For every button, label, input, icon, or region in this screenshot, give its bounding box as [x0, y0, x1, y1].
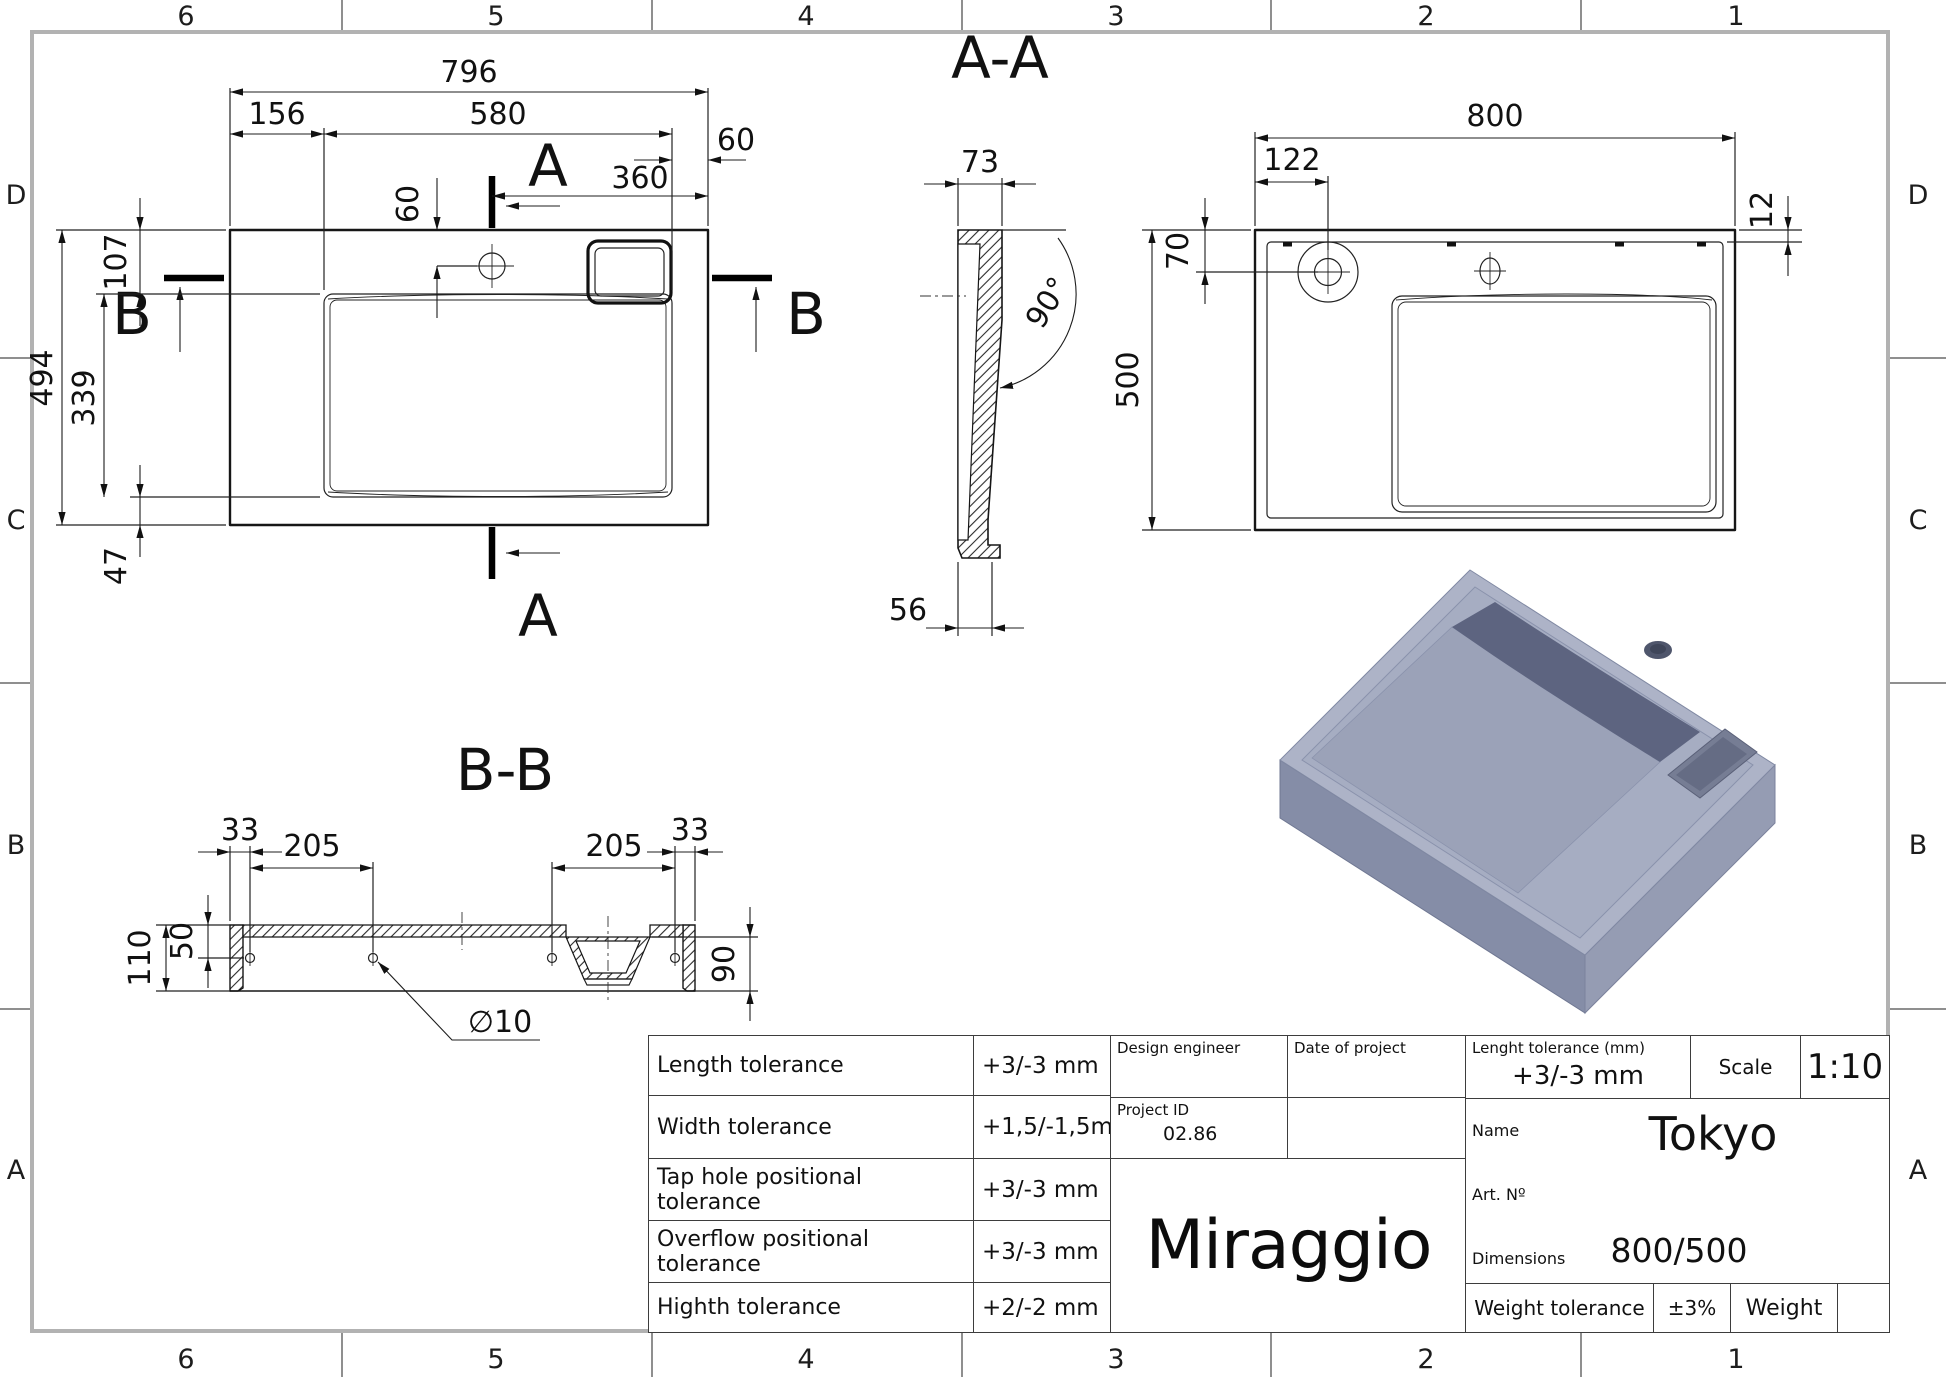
scale-label: Scale	[1719, 1055, 1773, 1079]
brand-logo-cell: Miraggio	[1110, 1158, 1467, 1333]
tolerance-row-label: Highth tolerance	[648, 1282, 974, 1333]
tolerance-label: Overflow positional tolerance	[657, 1228, 969, 1277]
dim-580: 580	[469, 97, 526, 132]
tolerance-row-value: +1,5/-1,5mm	[973, 1095, 1111, 1159]
drawing-sheet: 6 5 4 3 2 1 6 5 4 3 2 1 D C B A D C B A …	[0, 0, 1946, 1377]
name-art-dimensions-cell: Name Art. Nº Dimensions Tokyo 800/500	[1465, 1098, 1890, 1284]
weight-label-cell: Weight	[1730, 1283, 1838, 1333]
bottom-outline	[1255, 230, 1735, 530]
dim-339: 339	[67, 369, 102, 426]
dim-hole-diameter: ∅10	[468, 1005, 532, 1040]
dim-796: 796	[440, 55, 497, 90]
dim-360: 360	[611, 161, 668, 196]
dim-56: 56	[889, 593, 927, 628]
tolerance-label: Highth tolerance	[657, 1296, 841, 1321]
scale-value-cell: 1:10	[1800, 1035, 1890, 1099]
date-of-project-cell: Date of project	[1287, 1035, 1467, 1098]
render-3d	[1280, 570, 1775, 1013]
tolerance-row-label: Tap hole positional tolerance	[648, 1158, 974, 1221]
dim-90deg: 90°	[1019, 271, 1077, 335]
dim-205-right: 205	[585, 829, 642, 864]
brand-logo: Miraggio	[1145, 1206, 1431, 1285]
dimensions-label: Dimensions	[1472, 1249, 1565, 1268]
dim-33-left: 33	[221, 813, 259, 848]
tolerance-row-value: +2/-2 mm	[973, 1282, 1111, 1333]
bb-fixing-holes	[246, 950, 680, 966]
date-of-project-label: Date of project	[1288, 1036, 1466, 1057]
section-aa-title: A-A	[951, 24, 1049, 92]
weight-value-cell	[1837, 1283, 1890, 1333]
section-b-label: B	[786, 280, 826, 348]
project-id-cell: Project ID 02.86	[1110, 1097, 1288, 1159]
weight-tolerance-label-cell: Weight tolerance	[1465, 1283, 1654, 1333]
weight-tolerance-value-cell: ±3%	[1653, 1283, 1731, 1333]
project-id-value: 02.86	[1111, 1123, 1287, 1145]
section-bb-view: B-B 33 205	[123, 736, 758, 1040]
dimensions-value: 800/500	[1569, 1231, 1789, 1270]
length-tolerance-value: +3/-3 mm	[1466, 1061, 1690, 1091]
tolerance-value: +3/-3 mm	[982, 1177, 1099, 1203]
name-label: Name	[1472, 1121, 1519, 1140]
dim-107: 107	[99, 233, 134, 290]
dim-90: 90	[707, 945, 742, 983]
weight-label: Weight	[1746, 1296, 1823, 1321]
plan-basin	[324, 294, 672, 497]
tolerance-value: +2/-2 mm	[982, 1295, 1099, 1321]
design-engineer-label: Design engineer	[1111, 1036, 1287, 1057]
dim-47: 47	[99, 547, 134, 585]
empty-cell	[1287, 1097, 1467, 1159]
dim-494: 494	[25, 349, 60, 406]
design-engineer-cell: Design engineer	[1110, 1035, 1288, 1098]
section-a-label: A	[528, 132, 568, 200]
plan-view: A A B B 796 156 580 60 360	[25, 55, 826, 650]
section-aa-view: A-A 73 90° 56	[889, 24, 1077, 636]
weight-tolerance-value: ±3%	[1668, 1296, 1717, 1320]
dim-50: 50	[165, 922, 200, 960]
length-tolerance-label: Lenght tolerance (mm)	[1466, 1036, 1690, 1057]
tolerance-label: Length tolerance	[657, 1054, 844, 1079]
dim-70: 70	[1161, 232, 1196, 270]
length-tolerance-cell: Lenght tolerance (mm) +3/-3 mm	[1465, 1035, 1691, 1099]
section-a-label: A	[518, 582, 558, 650]
bb-top-plate	[243, 925, 566, 937]
tolerance-label: Tap hole positional tolerance	[657, 1166, 969, 1215]
project-id-label: Project ID	[1111, 1098, 1287, 1119]
dim-800: 800	[1466, 99, 1523, 134]
tolerance-row-label: Length tolerance	[648, 1035, 974, 1096]
dim-12: 12	[1745, 191, 1780, 229]
plan-outline	[230, 230, 708, 525]
tolerance-label: Width tolerance	[657, 1116, 832, 1141]
art-no-label: Art. Nº	[1472, 1185, 1525, 1204]
dim-156: 156	[248, 97, 305, 132]
scale-value: 1:10	[1807, 1047, 1883, 1087]
tolerance-row-value: +3/-3 mm	[973, 1035, 1111, 1096]
bottom-basin	[1392, 296, 1716, 512]
tolerance-row-label: Overflow positional tolerance	[648, 1220, 974, 1283]
plan-basin-inner	[330, 300, 666, 491]
dim-500: 500	[1111, 351, 1146, 408]
section-bb-title: B-B	[456, 736, 554, 804]
tolerance-row-label: Width tolerance	[648, 1095, 974, 1159]
scale-label-cell: Scale	[1690, 1035, 1801, 1099]
tolerance-row-value: +3/-3 mm	[973, 1220, 1111, 1283]
tolerance-row-value: +3/-3 mm	[973, 1158, 1111, 1221]
product-name: Tokyo	[1598, 1107, 1828, 1161]
dim-60-top: 60	[391, 185, 426, 223]
dim-33-right: 33	[671, 813, 709, 848]
dim-73: 73	[961, 145, 999, 180]
tolerance-value: +3/-3 mm	[982, 1053, 1099, 1079]
dim-60-right: 60	[717, 123, 755, 158]
dim-205-left: 205	[283, 829, 340, 864]
dim-122: 122	[1263, 143, 1320, 178]
bottom-view: 800 122 70 500 12	[1111, 99, 1802, 530]
tolerance-value: +3/-3 mm	[982, 1239, 1099, 1265]
dim-110: 110	[123, 929, 158, 986]
weight-tolerance-label: Weight tolerance	[1474, 1296, 1644, 1320]
